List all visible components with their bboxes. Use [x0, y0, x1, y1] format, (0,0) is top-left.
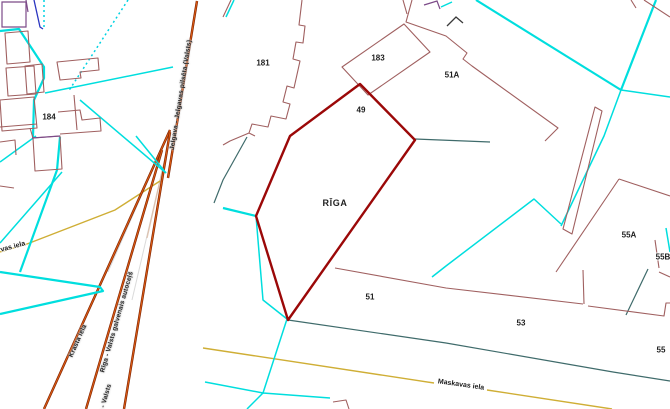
parcel-label-184: 184	[42, 113, 55, 122]
railway-fan-shading	[108, 133, 171, 300]
parcel-label-181: 181	[256, 59, 269, 68]
parcel-label-51A: 51A	[445, 71, 460, 80]
parcel-label-55B: 55B	[656, 253, 670, 262]
parcel-label-55: 55	[657, 346, 666, 355]
parcel-label-49: 49	[357, 106, 366, 115]
city-label-riga: RĪGA	[323, 198, 348, 208]
parcel-label-51: 51	[366, 293, 375, 302]
parcel-label-53: 53	[517, 319, 526, 328]
parcel-label-55A: 55A	[622, 231, 637, 240]
parcel-boundaries-teal	[214, 137, 670, 381]
railway-tracks	[44, 1, 197, 409]
cadastral-map-view[interactable]: 184 181 183 49 51A 55A 55B 51 53 55 RĪGA…	[0, 0, 670, 409]
parcel-label-183: 183	[371, 54, 384, 63]
